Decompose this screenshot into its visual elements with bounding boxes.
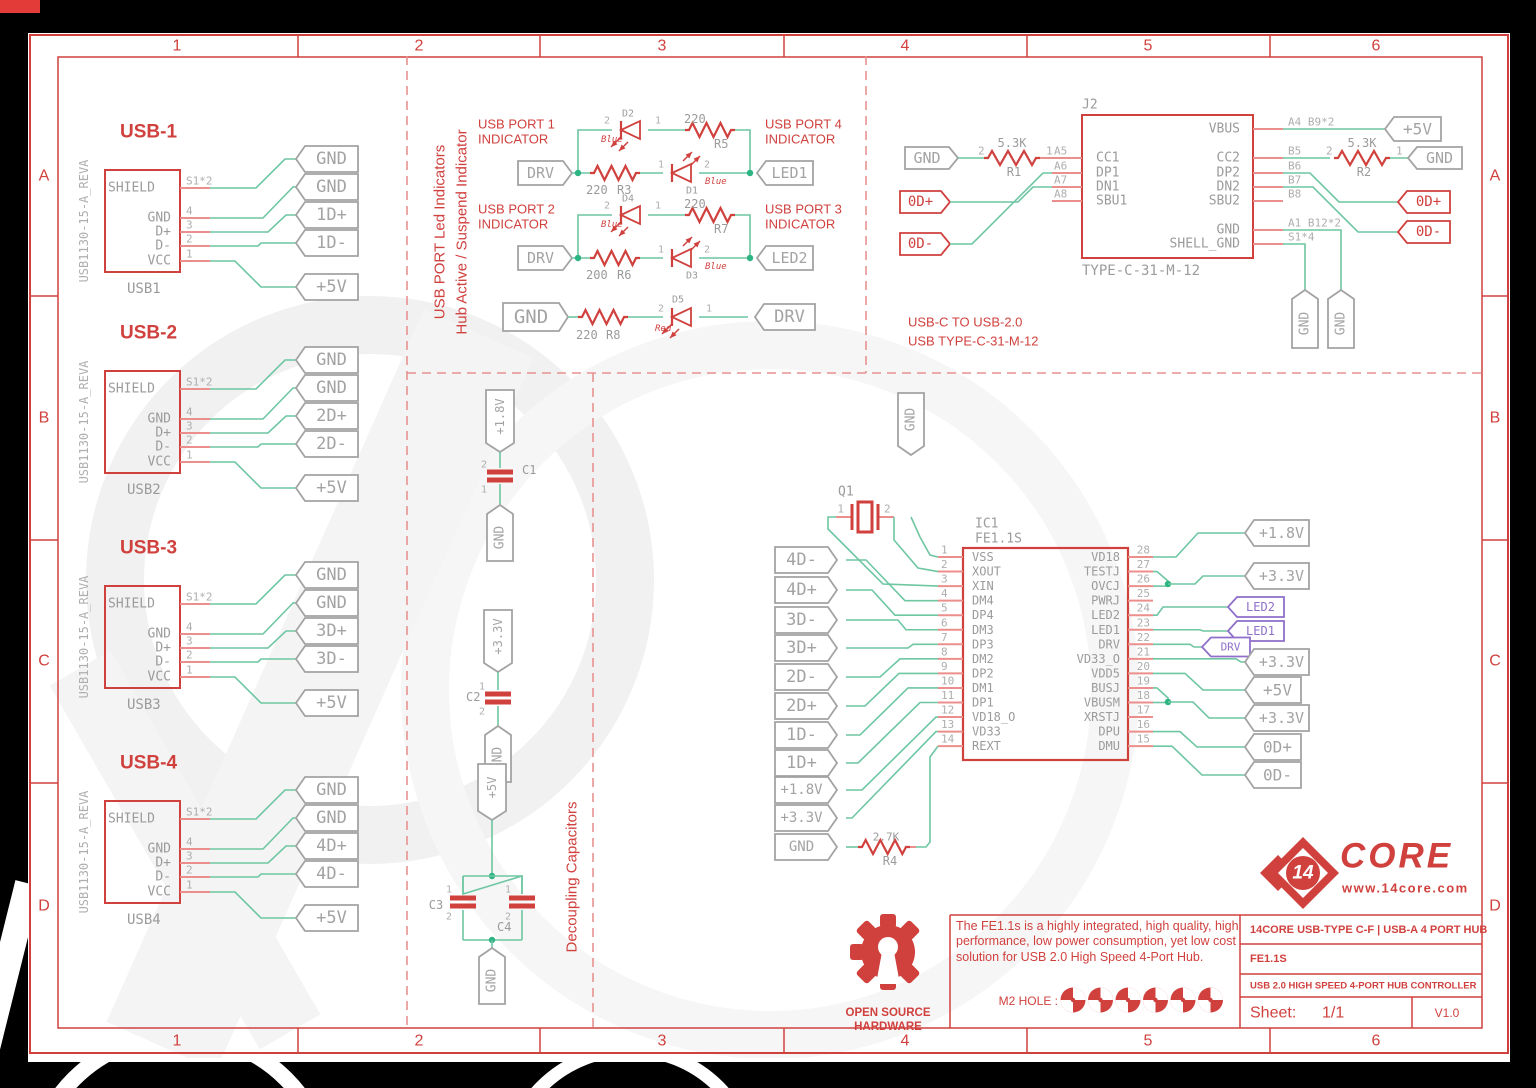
pin-number: 27 <box>1137 558 1150 571</box>
pin-number: 1 <box>1396 145 1403 158</box>
pin-number: 16 <box>1137 718 1150 731</box>
pin-name: DP1 <box>972 696 994 710</box>
grid-row-label: B <box>1490 410 1501 427</box>
resistor-value: 5.3K <box>1348 136 1378 150</box>
pin-number: 1 <box>706 304 712 315</box>
pin-number: S1*2 <box>186 806 213 819</box>
oshw-logo-text: HARDWARE <box>854 1021 922 1033</box>
pin-number: 1 <box>837 503 844 516</box>
usb-designator: USB1 <box>127 281 161 297</box>
grid-column-label: 6 <box>1372 38 1381 55</box>
pin-name: DRV <box>1098 637 1120 651</box>
pin-name: VDD5 <box>1091 666 1120 680</box>
pin-name: D+ <box>155 856 171 871</box>
net-flag-label: 3D+ <box>786 638 817 658</box>
pin-number: 1 <box>941 544 948 557</box>
net-flag-label: 3D+ <box>316 621 347 641</box>
pin-name: GND <box>148 842 172 857</box>
pin-name: GND <box>1217 223 1241 238</box>
net-flag-label: 4D- <box>786 550 817 570</box>
pin-name: CC1 <box>1096 151 1119 166</box>
net-flag-label: +3.3V <box>780 810 823 826</box>
net-flag-led2-label: LED2 <box>1246 600 1275 614</box>
pin-name: DP3 <box>972 637 994 651</box>
net-flag-label: 2D+ <box>316 406 347 426</box>
pin-name: VSS <box>972 550 994 564</box>
diode-name: D4 <box>622 194 634 205</box>
capacitor-name: C4 <box>497 920 511 934</box>
pin-name: DM4 <box>972 594 994 608</box>
pin-number: 1 <box>1046 145 1053 158</box>
net-flag-5v-label: +5V <box>1403 120 1432 139</box>
grid-column-label: 5 <box>1144 38 1153 55</box>
pin-name: OVCJ <box>1091 579 1120 593</box>
net-flag-gnd-label: GND <box>493 526 508 550</box>
ic-designator: IC1 <box>975 517 998 532</box>
net-flag-label: GND <box>316 378 347 398</box>
resistor-value: 220 <box>684 112 706 126</box>
pin-number: A5 <box>1054 145 1067 158</box>
pin-number: B8 <box>1288 188 1301 201</box>
junction-dot <box>747 255 753 261</box>
junction-dot <box>575 170 581 176</box>
pin-number: B7 <box>1288 174 1301 187</box>
pin-name: DP1 <box>1096 166 1119 181</box>
net-flag-label: 2D+ <box>786 696 817 716</box>
grid-column-label: 6 <box>1372 1033 1381 1050</box>
net-flag-label: 2D- <box>786 667 817 687</box>
pin-name: D+ <box>155 426 171 441</box>
ic-value: FE1.1S <box>975 532 1022 547</box>
pin-number: 2 <box>941 558 948 571</box>
pin-number: 18 <box>1137 689 1150 702</box>
usb-block-title: USB-1 <box>120 122 177 143</box>
net-flag-label: 4D- <box>316 864 347 884</box>
pin-name: D+ <box>155 225 171 240</box>
diode-name: D1 <box>686 186 698 197</box>
pin-number: 17 <box>1137 704 1150 717</box>
diode-color: Blue <box>601 220 623 230</box>
grid-column-label: 2 <box>415 1033 424 1050</box>
resistor-value: 200 <box>586 268 608 282</box>
grid-row-label: A <box>39 168 50 185</box>
pin-name: GND <box>148 627 172 642</box>
schematic-page: 112233445566AABBCCDDUSB-1USB1130-15-A_RE… <box>0 0 1536 1088</box>
pin-name: DM1 <box>972 681 994 695</box>
pin-number: 1 <box>658 245 664 256</box>
usb-part-number: USB1130-15-A_REVA <box>77 159 91 283</box>
grid-column-label: 3 <box>658 1033 667 1050</box>
pin-number: 25 <box>1137 587 1150 600</box>
usb-block-title: USB-4 <box>120 753 177 774</box>
usb-block-title: USB-2 <box>120 323 177 344</box>
pin-name: VD18 <box>1091 550 1120 564</box>
pin-name: DPU <box>1098 725 1120 739</box>
net-flag-led1-label: LED1 <box>1246 624 1275 638</box>
net-flag-label: +5V <box>316 478 347 498</box>
pin-number: B5 <box>1288 145 1301 158</box>
pin-name: SBU1 <box>1096 194 1127 209</box>
mounting-hole-icon <box>1126 998 1130 1002</box>
pin-name: BUSJ <box>1091 681 1120 695</box>
net-flag-label: +5V <box>316 277 347 297</box>
net-flag-gnd-label: GND <box>485 969 500 993</box>
resistor-name: R2 <box>1357 165 1371 179</box>
pin-number: 1 <box>186 248 193 261</box>
net-flag-1v8-label: +1.8V <box>493 398 507 434</box>
brand-number: 14 <box>1292 863 1314 884</box>
grid-row-label: C <box>38 653 50 670</box>
resistor-name: R6 <box>617 268 631 282</box>
grid-column-label: 4 <box>901 1033 910 1050</box>
pin-number: 2 <box>479 707 485 718</box>
pin-name: D- <box>155 239 171 254</box>
pin-name: LED2 <box>1091 608 1120 622</box>
section-caption: USB TYPE-C-31-M-12 <box>908 334 1039 349</box>
indicator-caption: USB PORT 1 <box>478 117 555 132</box>
title-chip: FE1.1S <box>1250 953 1287 965</box>
pin-number: 1 <box>481 485 487 496</box>
m2-hole-label: M2 HOLE : <box>999 994 1058 1008</box>
pin-name: VCC <box>148 670 171 685</box>
pin-number: 10 <box>941 674 954 687</box>
pin-number: 26 <box>1137 573 1150 586</box>
pin-number: 15 <box>1137 733 1150 746</box>
pin-number: 5 <box>941 602 948 615</box>
oshw-logo-text: OPEN SOURCE <box>846 1007 931 1019</box>
pin-name: SHIELD <box>108 382 155 397</box>
pin-name: VD33 <box>972 725 1001 739</box>
indicator-caption: USB PORT 3 <box>765 202 842 217</box>
pin-name: DMU <box>1098 739 1120 753</box>
pin-number: 6 <box>941 616 948 629</box>
net-flag-label: 2D- <box>316 434 347 454</box>
pin-number: 3 <box>186 219 193 232</box>
mounting-hole-icon <box>1098 998 1102 1002</box>
pin-number: B6 <box>1288 160 1301 173</box>
resistor-name: R1 <box>1007 165 1021 179</box>
pin-number: 2 <box>446 912 452 923</box>
pin-name: SHIELD <box>108 812 155 827</box>
pin-number: S1*4 <box>1288 231 1315 244</box>
net-flag-1v8-label: +1.8V <box>1259 524 1304 542</box>
pin-name: VCC <box>148 455 171 470</box>
pin-number: 11 <box>941 689 954 702</box>
pin-name: D- <box>155 870 171 885</box>
section-title: Hub Active / Suspend Indicator <box>454 129 471 334</box>
usb-part-number: USB1130-15-A_REVA <box>77 575 91 699</box>
pin-number: 20 <box>1137 660 1150 673</box>
connector-value: TYPE-C-31-M-12 <box>1082 263 1200 279</box>
pin-name: GND <box>148 412 172 427</box>
pin-number: 2 <box>481 460 487 471</box>
diode-color: Red <box>655 324 672 334</box>
net-flag-drv-label: DRV <box>527 249 554 267</box>
indicator-caption: INDICATOR <box>478 217 548 232</box>
pin-number: 2 <box>658 304 664 315</box>
pin-name: REXT <box>972 739 1001 753</box>
pin-number: 3 <box>186 635 193 648</box>
net-flag-drv-label: DRV <box>1221 641 1241 654</box>
pin-number: 1 <box>186 449 193 462</box>
pin-number: A7 <box>1054 174 1067 187</box>
pin-number: 1 <box>186 664 193 677</box>
net-flag-label: 1D+ <box>316 205 347 225</box>
net-flag-drv-label: DRV <box>527 164 554 182</box>
grid-row-label: C <box>1489 653 1501 670</box>
usb-designator: USB3 <box>127 697 161 713</box>
pin-number: 2 <box>186 233 193 246</box>
diode-color: Blue <box>601 135 623 145</box>
pin-number: A4 B9*2 <box>1288 116 1334 129</box>
pin-number: 12 <box>941 704 954 717</box>
project-description-text: The FE1.1s is a highly integrated, high … <box>956 919 1244 965</box>
schematic-canvas: 112233445566AABBCCDDUSB-1USB1130-15-A_RE… <box>0 0 1536 1088</box>
pin-name: VBUS <box>1209 122 1240 137</box>
pin-number: 2 <box>186 649 193 662</box>
pin-name: DP4 <box>972 608 994 622</box>
section-caption: USB-C TO USB-2.0 <box>908 315 1022 330</box>
pin-name: SHELL_GND <box>1170 237 1241 252</box>
pin-name: D+ <box>155 641 171 656</box>
net-flag-label: +1.8V <box>780 782 823 798</box>
net-flag-0dminus-label: 0D- <box>1263 766 1292 785</box>
section-title: Decoupling Capacitors <box>564 802 581 953</box>
capacitor-name: C2 <box>466 690 480 704</box>
pin-number: 3 <box>941 573 948 586</box>
section-title: USB PORT Led Indicators <box>432 145 449 320</box>
resistor-name: R5 <box>714 137 728 151</box>
pin-number: 3 <box>186 850 193 863</box>
pin-name: SHIELD <box>108 597 155 612</box>
pin-number: A1 B12*2 <box>1288 217 1341 230</box>
net-flag-gnd-label: GND <box>904 408 919 432</box>
net-flag-led-label: LED1 <box>771 164 807 182</box>
net-flag-label: 1D- <box>786 725 817 745</box>
grid-row-label: A <box>1490 168 1501 185</box>
indicator-caption: USB PORT 4 <box>765 117 842 132</box>
pin-number: A6 <box>1054 160 1067 173</box>
net-flag-3v3-label: +3.3V <box>491 618 505 654</box>
resistor-value: 5.3K <box>998 136 1028 150</box>
pin-number: S1*2 <box>186 175 213 188</box>
junction-dot <box>575 255 581 261</box>
grid-column-label: 2 <box>415 38 424 55</box>
pin-name: VCC <box>148 885 171 900</box>
capacitor-name: C1 <box>522 463 536 477</box>
pin-number: 1 <box>655 201 661 212</box>
resistor-value: 2.7K <box>873 831 900 844</box>
pin-number: 2 <box>1326 145 1333 158</box>
resistor-value: 220 <box>684 197 706 211</box>
diode-color: Blue <box>705 177 727 187</box>
net-flag-5v-label: +5V <box>485 777 499 799</box>
resistor-value: 220 <box>576 328 598 342</box>
title-subtitle: USB 2.0 HIGH SPEED 4-PORT HUB CONTROLLER <box>1250 981 1477 992</box>
project-description: The FE1.1s is a highly integrated, high … <box>956 919 1244 991</box>
pin-number: 2 <box>604 116 610 127</box>
pin-name: XRSTJ <box>1084 710 1120 724</box>
indicator-caption: INDICATOR <box>765 132 835 147</box>
net-flag-0dplus-label: 0D+ <box>1416 194 1441 210</box>
usb-part-number: USB1130-15-A_REVA <box>77 790 91 914</box>
pin-number: 1 <box>446 885 452 896</box>
grid-column-label: 1 <box>173 1033 182 1050</box>
net-flag-label: GND <box>316 593 347 613</box>
pin-name: DN2 <box>1217 180 1240 195</box>
pin-number: 2 <box>884 503 891 516</box>
net-flag-gnd-label: GND <box>1334 312 1349 336</box>
net-flag-label: GND <box>316 565 347 585</box>
net-flag-label: GND <box>316 177 347 197</box>
pin-number: 23 <box>1137 616 1150 629</box>
mounting-hole-icon <box>1181 998 1185 1002</box>
net-flag-label: GND <box>316 808 347 828</box>
net-flag-0dplus-label: 0D+ <box>1263 738 1292 757</box>
pin-number: 8 <box>941 645 948 658</box>
pin-number: 21 <box>1137 645 1150 658</box>
grid-row-label: B <box>39 410 50 427</box>
pin-number: 4 <box>186 621 193 634</box>
net-flag-label: GND <box>316 350 347 370</box>
connector-designator: J2 <box>1082 98 1098 113</box>
pin-name: D- <box>155 440 171 455</box>
pin-number: S1*2 <box>186 376 213 389</box>
net-flag-label: GND <box>316 149 347 169</box>
net-flag-label: 1D- <box>316 233 347 253</box>
brand-url: www.14core.com <box>1341 881 1469 896</box>
pin-number: 4 <box>941 587 948 600</box>
pin-name: XOUT <box>972 565 1001 579</box>
usb-designator: USB2 <box>127 482 161 498</box>
pin-number: 22 <box>1137 631 1150 644</box>
net-flag-label: 3D- <box>316 649 347 669</box>
usb-part-number: USB1130-15-A_REVA <box>77 360 91 484</box>
resistor-name: R8 <box>606 328 620 342</box>
pin-name: GND <box>148 211 172 226</box>
net-flag-label: 4D+ <box>786 580 817 600</box>
net-flag-0dminus-label: 0D- <box>1416 224 1441 240</box>
pin-number: 1 <box>655 116 661 127</box>
pin-number: 19 <box>1137 674 1150 687</box>
pin-name: CC2 <box>1217 151 1240 166</box>
net-flag-gnd-label: GND <box>1426 149 1453 167</box>
pin-number: 24 <box>1137 602 1151 615</box>
pin-name: DN1 <box>1096 180 1119 195</box>
diode-name: D2 <box>622 109 634 120</box>
pin-number: 2 <box>704 245 710 256</box>
pin-number: 2 <box>704 160 710 171</box>
diode-name: D3 <box>686 271 698 282</box>
pin-number: 2 <box>604 201 610 212</box>
pin-number: 1 <box>505 885 511 896</box>
net-flag-label: 3D- <box>786 610 817 630</box>
net-flag-3v3-label: +3.3V <box>1259 709 1304 727</box>
net-flag-gnd-label: GND <box>913 149 940 167</box>
pin-name: DP2 <box>1217 166 1240 181</box>
pin-name: VD33_O <box>1077 652 1120 666</box>
pin-number: 4 <box>186 406 193 419</box>
net-flag-led-label: LED2 <box>771 249 807 267</box>
pin-name: DM2 <box>972 652 994 666</box>
mounting-hole-icon <box>1153 998 1157 1002</box>
pin-number: 3 <box>186 420 193 433</box>
pin-name: LED1 <box>1091 623 1120 637</box>
brand-name: CORE <box>1340 837 1453 876</box>
pin-number: 4 <box>186 836 193 849</box>
net-flag-drv-label: DRV <box>774 307 805 327</box>
grid-row-label: D <box>38 898 50 915</box>
junction-dot <box>747 170 753 176</box>
grid-column-label: 4 <box>901 38 910 55</box>
sheet-label: Sheet: <box>1250 1005 1296 1022</box>
indicator-caption: INDICATOR <box>478 132 548 147</box>
pin-number: 1 <box>186 879 193 892</box>
top-left-red-mark <box>0 0 40 13</box>
net-flag-label: 4D+ <box>316 836 347 856</box>
pin-name: PWRJ <box>1091 594 1120 608</box>
pin-name: VD18_O <box>972 710 1015 724</box>
indicator-caption: USB PORT 2 <box>478 202 555 217</box>
pin-number: 7 <box>941 631 948 644</box>
pin-name: VBUSM <box>1084 696 1120 710</box>
grid-row-label: D <box>1489 898 1501 915</box>
capacitor-name: C3 <box>429 898 443 912</box>
pin-name: VCC <box>148 254 171 269</box>
net-flag-label: GND <box>316 780 347 800</box>
net-flag-label: +5V <box>316 693 347 713</box>
usb-block-title: USB-3 <box>120 538 177 559</box>
resistor-name: R4 <box>883 854 897 868</box>
diode-color: Blue <box>705 262 727 272</box>
pin-number: 2 <box>186 434 193 447</box>
pin-name: TESTJ <box>1084 565 1120 579</box>
resistor-value: 220 <box>586 183 608 197</box>
pin-name: D- <box>155 655 171 670</box>
pin-number: A8 <box>1054 188 1067 201</box>
pin-name: DM3 <box>972 623 994 637</box>
grid-column-label: 5 <box>1144 1033 1153 1050</box>
net-flag-3v3-label: +3.3V <box>1259 653 1304 671</box>
net-flag-0dplus-label: 0D+ <box>908 194 933 210</box>
pin-number: 9 <box>941 660 948 673</box>
pin-number: 28 <box>1137 544 1150 557</box>
diode-name: D5 <box>672 295 684 306</box>
version-label: V1.0 <box>1435 1006 1460 1020</box>
net-flag-0dminus-label: 0D- <box>908 236 933 252</box>
pin-name: SBU2 <box>1209 194 1240 209</box>
pin-number: 2 <box>978 145 985 158</box>
indicator-caption: INDICATOR <box>765 217 835 232</box>
mounting-hole-icon <box>1071 998 1075 1002</box>
resistor-name: R7 <box>714 222 728 236</box>
pin-name: SHIELD <box>108 181 155 196</box>
pin-number: 4 <box>186 205 193 218</box>
pin-number: S1*2 <box>186 591 213 604</box>
net-flag-label: GND <box>789 839 814 855</box>
pin-number: 13 <box>941 718 954 731</box>
net-flag-gnd-label: GND <box>514 306 548 328</box>
usb-designator: USB4 <box>127 912 161 928</box>
pin-number: 2 <box>186 864 193 877</box>
grid-column-label: 3 <box>658 38 667 55</box>
pin-name: XIN <box>972 579 994 593</box>
net-flag-3v3-label: +3.3V <box>1259 567 1304 585</box>
net-flag-gnd-label: GND <box>1298 312 1313 336</box>
mounting-hole-icon <box>1208 998 1212 1002</box>
pin-number: 14 <box>941 733 955 746</box>
net-flag-label: +5V <box>316 908 347 928</box>
